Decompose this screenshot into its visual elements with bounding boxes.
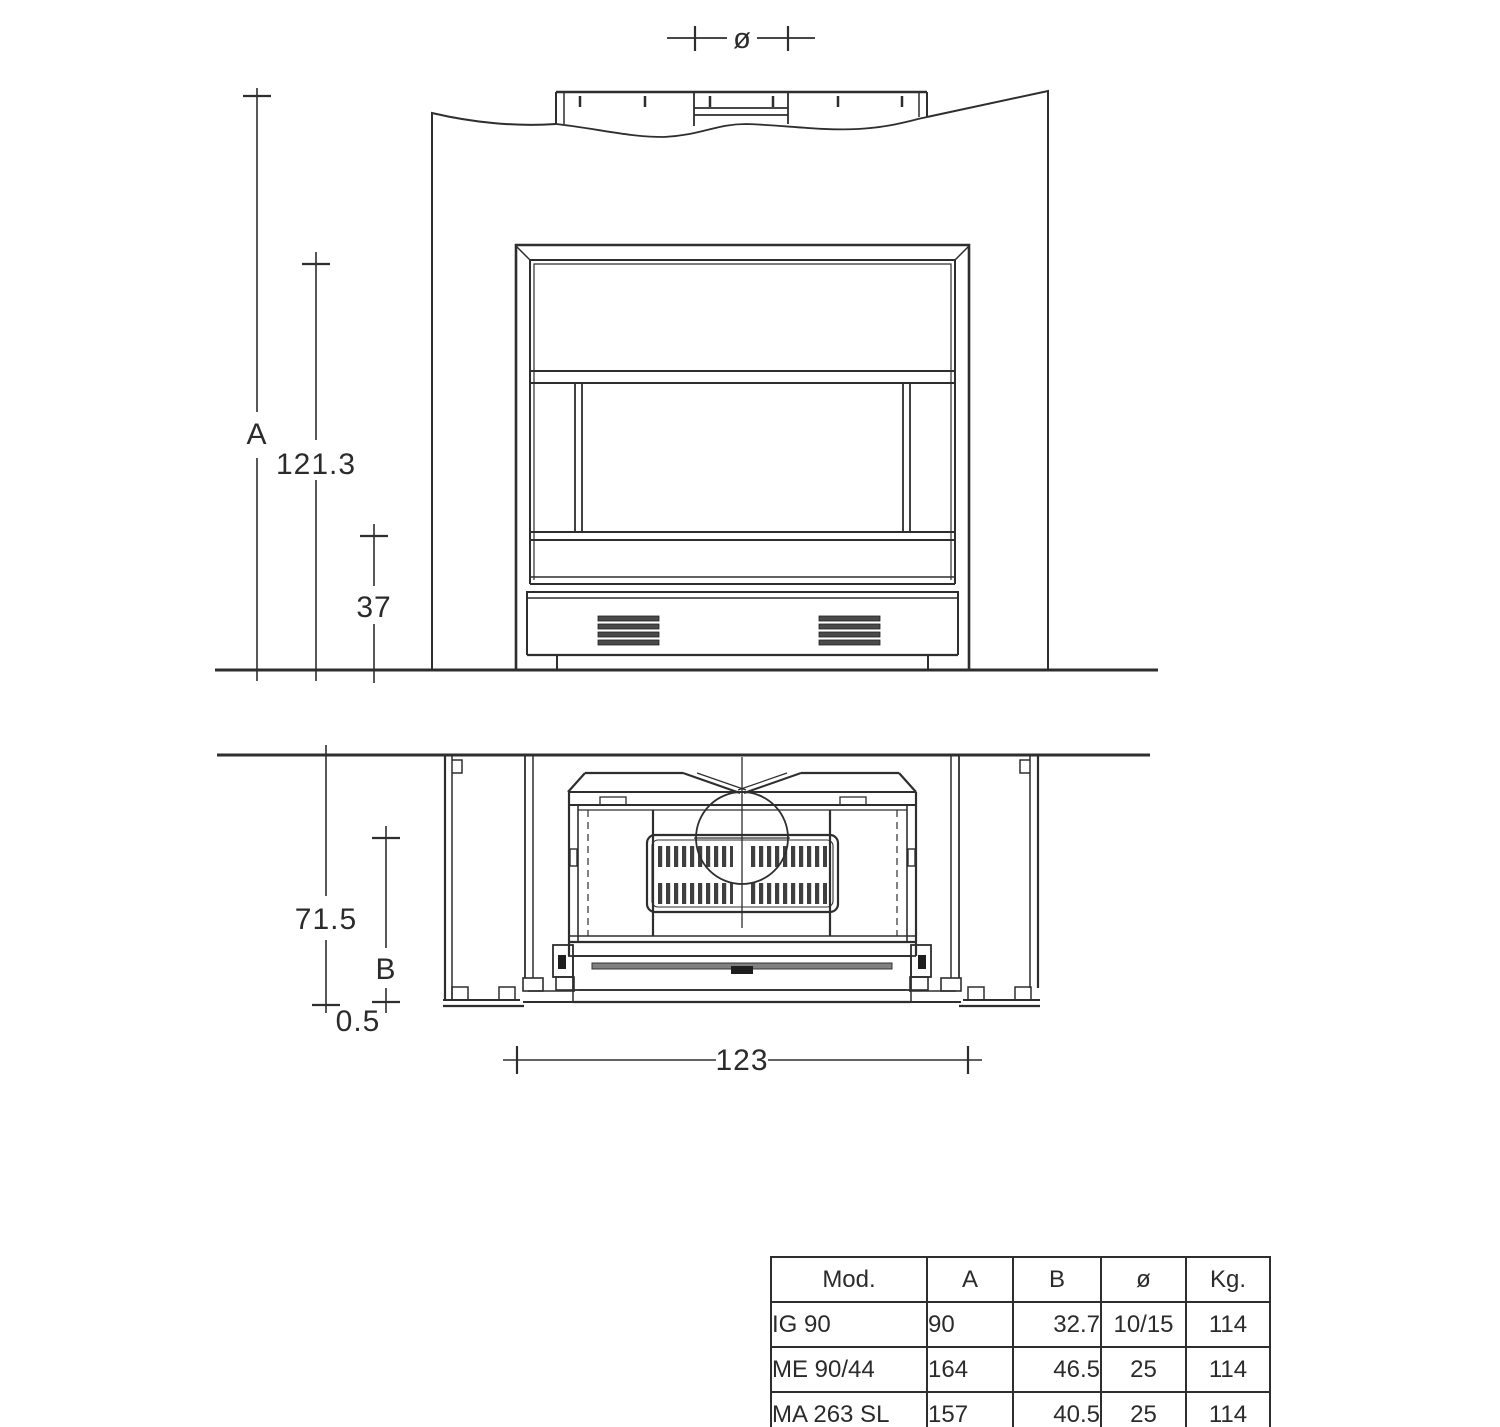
dim-flue-diameter: ø (667, 23, 815, 55)
vent-grille-left (598, 616, 659, 645)
vent-grille-right (819, 616, 880, 645)
technical-drawing-page: ø A 121.3 37 (0, 0, 1500, 1427)
dim-total-height: A (243, 88, 271, 681)
cell-a: 90 (927, 1302, 1013, 1347)
dim-depth: 71.5 (295, 745, 357, 1013)
col-header-mod: Mod. (771, 1257, 927, 1302)
plan-view-drawing: 71.5 B 0.5 123 (217, 745, 1150, 1077)
cell-a: 164 (927, 1347, 1013, 1392)
fireplace-technical-drawing: ø A 121.3 37 (0, 0, 1500, 1427)
dim-b: B (372, 826, 400, 1013)
window-left-post (575, 383, 582, 532)
cell-phi: 25 (1101, 1392, 1186, 1427)
window-right-post (903, 383, 910, 532)
cell-phi: 25 (1101, 1347, 1186, 1392)
mounting-bracket (556, 92, 927, 126)
table-row: ME 90/44 164 46.5 25 114 (771, 1347, 1270, 1392)
dim-label-a: A (246, 418, 267, 451)
cell-model: ME 90/44 (771, 1347, 927, 1392)
cell-kg: 114 (1186, 1392, 1270, 1427)
plan-left-wall-panel (443, 755, 524, 1006)
cell-b: 46.5 (1013, 1347, 1101, 1392)
col-header-a: A (927, 1257, 1013, 1302)
spec-table: Mod. A B ø Kg. IG 90 90 32.7 10/15 114 M… (770, 1256, 1271, 1427)
col-header-kg: Kg. (1186, 1257, 1270, 1302)
fireplace-front (516, 245, 969, 670)
cell-model: IG 90 (771, 1302, 927, 1347)
wall-break-line (556, 117, 927, 137)
front-view-drawing: ø A 121.3 37 (215, 23, 1158, 683)
col-header-phi: ø (1101, 1257, 1186, 1302)
cell-model: MA 263 SL (771, 1392, 927, 1427)
cell-a: 157 (927, 1392, 1013, 1427)
dim-frame-height: 121.3 (276, 252, 356, 681)
dim-label-offset: 0.5 (336, 1005, 381, 1038)
dim-label-flue: ø (733, 23, 751, 55)
dim-label-plinth: 37 (356, 591, 391, 624)
cell-phi: 10/15 (1101, 1302, 1186, 1347)
dim-label-height: 121.3 (276, 448, 356, 481)
dim-plinth-height: 37 (356, 524, 391, 683)
dim-label-width: 123 (715, 1044, 768, 1077)
cell-b: 32.7 (1013, 1302, 1101, 1347)
plan-right-wall-panel (959, 755, 1040, 1006)
cell-kg: 114 (1186, 1347, 1270, 1392)
spec-table-header-row: Mod. A B ø Kg. (771, 1257, 1270, 1302)
table-row: IG 90 90 32.7 10/15 114 (771, 1302, 1270, 1347)
cell-b: 40.5 (1013, 1392, 1101, 1427)
dim-width: 123 (503, 1044, 982, 1077)
table-row: MA 263 SL 157 40.5 25 114 (771, 1392, 1270, 1427)
cell-kg: 114 (1186, 1302, 1270, 1347)
dim-label-depth: 71.5 (295, 903, 357, 936)
col-header-b: B (1013, 1257, 1101, 1302)
plan-front-assembly (553, 945, 931, 1002)
dim-label-b: B (375, 953, 396, 986)
